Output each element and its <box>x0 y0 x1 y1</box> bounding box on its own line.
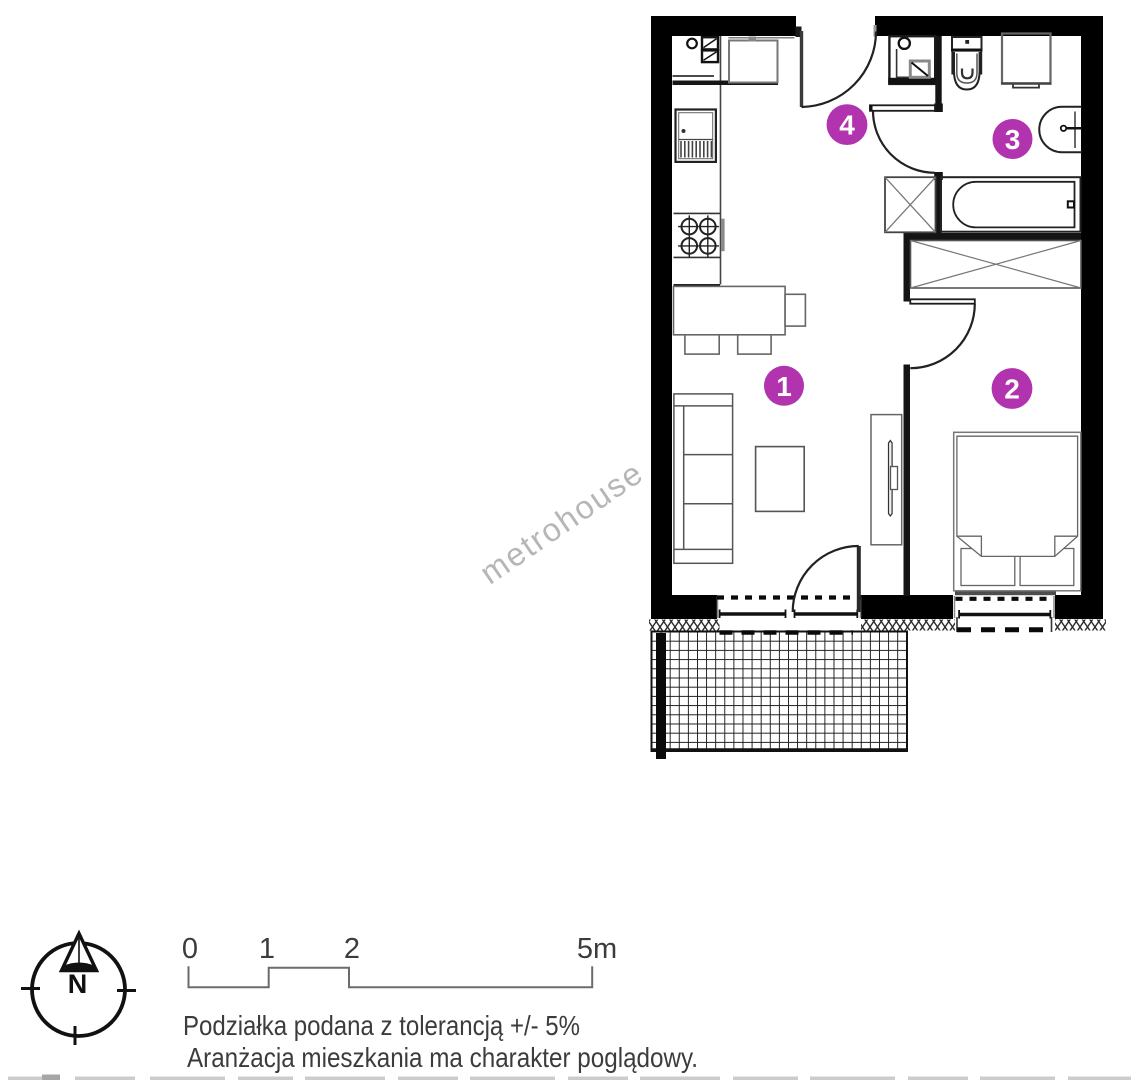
svg-text:N: N <box>68 969 88 999</box>
svg-text:5m: 5m <box>577 933 617 965</box>
svg-text:2: 2 <box>1004 374 1020 405</box>
svg-text:0: 0 <box>182 933 198 965</box>
svg-text:2: 2 <box>344 933 360 965</box>
svg-text:Aranżacja mieszkania ma charak: Aranżacja mieszkania ma charakter pogląd… <box>187 1042 698 1073</box>
svg-text:4: 4 <box>839 110 855 141</box>
svg-text:1: 1 <box>259 933 275 965</box>
svg-text:Podziałka podana z tolerancją: Podziałka podana z tolerancją +/- 5% <box>183 1010 580 1041</box>
svg-text:1: 1 <box>776 371 792 402</box>
svg-text:3: 3 <box>1005 124 1021 155</box>
